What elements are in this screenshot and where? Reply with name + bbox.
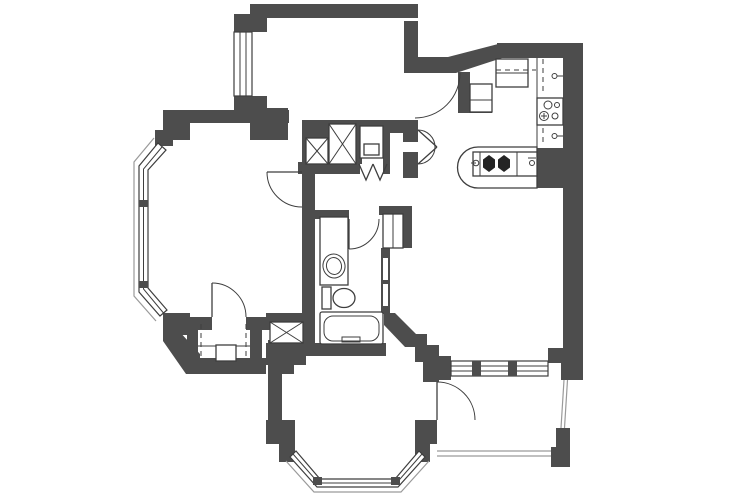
- window-mullion-block: [391, 477, 400, 485]
- wall: [302, 343, 386, 356]
- bottom-bedroom-bay-window: [286, 451, 429, 492]
- toilet-tank: [322, 287, 331, 309]
- bathroom-door: [349, 219, 379, 249]
- faucet-knob: [552, 134, 557, 139]
- window-mullion-block: [139, 281, 148, 288]
- wall: [403, 152, 418, 178]
- kitchen-diagonal-wall: [448, 43, 502, 73]
- toilet: [322, 287, 355, 309]
- living-room-lower-door: [212, 283, 246, 317]
- wall: [403, 206, 412, 248]
- right-exterior-wall: [563, 43, 583, 355]
- window-glass: [234, 32, 252, 96]
- utility-bifold-doors: [359, 164, 387, 180]
- balcony-door: [437, 382, 475, 420]
- wall-faucet-lower: [552, 134, 563, 139]
- niche: [383, 258, 388, 280]
- balcony-railing: [437, 380, 568, 456]
- window-mullion-block: [508, 361, 517, 376]
- toilet-bowl: [333, 289, 355, 308]
- window-glass: [451, 361, 548, 376]
- wall: [250, 4, 418, 18]
- wall: [403, 122, 418, 142]
- top-bedroom-window: [234, 32, 252, 96]
- bathtub: [320, 312, 383, 344]
- balcony-window-wall: [451, 361, 548, 376]
- floor-plan-page: [0, 0, 730, 500]
- x-shaft-lower: [270, 322, 303, 343]
- cooktop-island: [457, 147, 537, 188]
- wall: [404, 57, 452, 73]
- door-swing-arc: [349, 219, 379, 249]
- x-shaft-left: [306, 138, 328, 164]
- door-swing-arc: [212, 283, 246, 317]
- wall: [268, 360, 294, 374]
- wall: [268, 340, 282, 424]
- linen-cabinet: [383, 214, 403, 248]
- utility-drawer: [364, 144, 379, 155]
- refrigerator: [470, 84, 492, 112]
- x-shaft-right: [329, 124, 356, 164]
- door-swing-arc: [415, 73, 460, 118]
- firebox: [216, 345, 236, 361]
- top-bedroom-door: [415, 73, 460, 118]
- wall: [535, 148, 563, 188]
- living-room-bay-window: [134, 138, 167, 321]
- door-swing-arc: [418, 130, 435, 164]
- door-swing-arc: [437, 382, 475, 420]
- wall: [234, 14, 267, 32]
- door-leaf: [418, 130, 437, 164]
- window-mullion-block: [313, 477, 322, 485]
- niche: [383, 284, 388, 306]
- window-glass: [290, 451, 425, 487]
- utility-closet: [360, 126, 383, 158]
- door-swing-arc: [267, 172, 302, 207]
- balcony-pillar: [551, 428, 570, 467]
- wall: [404, 21, 418, 59]
- wall-faucet-upper: [552, 74, 563, 79]
- window-mullion-block: [139, 200, 148, 207]
- railing-bottom: [437, 451, 551, 456]
- floor-plan-drawing: [0, 0, 730, 500]
- window-mullion-block: [472, 361, 481, 376]
- living-room-upper-door: [267, 172, 302, 207]
- faucet-knob: [552, 74, 557, 79]
- kitchen-sink: [537, 98, 563, 125]
- wall: [423, 356, 451, 380]
- balcony-pillar: [561, 348, 583, 380]
- foyer-entry-door: [418, 130, 437, 164]
- wall: [302, 120, 330, 138]
- bathroom-chamfer-wall: [384, 313, 417, 347]
- wall: [266, 313, 306, 322]
- railing-right: [561, 380, 568, 428]
- bifold-chevrons: [359, 164, 387, 180]
